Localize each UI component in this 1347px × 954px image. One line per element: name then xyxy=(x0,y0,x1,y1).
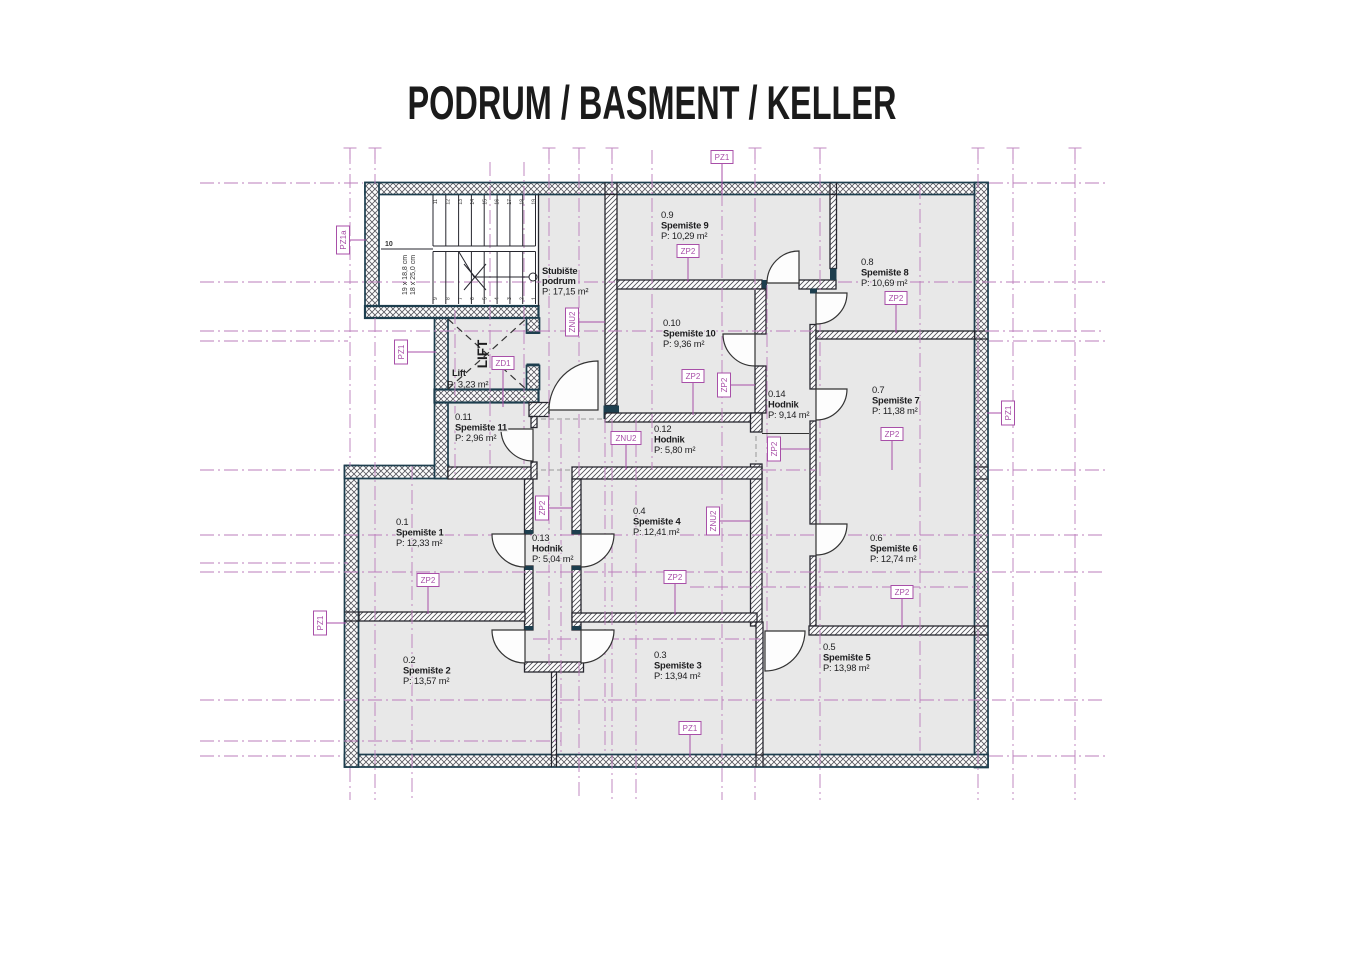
svg-text:ZP2: ZP2 xyxy=(885,430,900,439)
svg-text:0.14: 0.14 xyxy=(768,388,785,399)
svg-text:1: 1 xyxy=(532,297,538,300)
svg-text:7: 7 xyxy=(458,297,464,300)
svg-text:0.3: 0.3 xyxy=(654,649,666,660)
svg-text:ZP2: ZP2 xyxy=(668,573,683,582)
svg-text:LIFT: LIFT xyxy=(475,339,490,368)
svg-text:0.2: 0.2 xyxy=(403,654,415,665)
svg-text:0.10: 0.10 xyxy=(663,317,680,328)
svg-text:P: 17,15 m²: P: 17,15 m² xyxy=(542,286,588,297)
svg-text:18: 18 xyxy=(519,199,525,205)
svg-text:Hodnik: Hodnik xyxy=(654,434,686,445)
svg-text:Spemište 7: Spemište 7 xyxy=(872,395,920,406)
svg-text:ZP2: ZP2 xyxy=(889,294,904,303)
svg-text:Lift: Lift xyxy=(452,367,466,378)
svg-text:P: 12,74 m²: P: 12,74 m² xyxy=(870,553,916,564)
svg-text:0.11: 0.11 xyxy=(455,411,472,422)
svg-text:ZP2: ZP2 xyxy=(538,500,547,515)
svg-text:P: 5,80 m²: P: 5,80 m² xyxy=(654,444,695,455)
svg-text:PZ1: PZ1 xyxy=(397,344,406,359)
svg-text:8: 8 xyxy=(446,297,452,300)
svg-text:5: 5 xyxy=(482,297,488,300)
svg-text:P: 13,98 m²: P: 13,98 m² xyxy=(823,662,869,673)
svg-text:Spemište 5: Spemište 5 xyxy=(823,652,871,663)
svg-text:PZ1: PZ1 xyxy=(1004,405,1013,420)
svg-text:PODRUM / BASMENT / KELLER: PODRUM / BASMENT / KELLER xyxy=(408,76,897,129)
svg-text:Spemište 9: Spemište 9 xyxy=(661,220,709,231)
svg-text:0.6: 0.6 xyxy=(870,532,882,543)
svg-text:Spemište 2: Spemište 2 xyxy=(403,665,451,676)
svg-text:Spemište 8: Spemište 8 xyxy=(861,267,909,278)
svg-text:ZP2: ZP2 xyxy=(895,588,910,597)
svg-text:P: 9,36 m²: P: 9,36 m² xyxy=(663,338,704,349)
svg-text:14: 14 xyxy=(470,199,476,205)
svg-text:0.13: 0.13 xyxy=(532,532,549,543)
svg-text:P: 13,94 m²: P: 13,94 m² xyxy=(654,670,700,681)
svg-text:16: 16 xyxy=(495,199,501,205)
svg-text:12: 12 xyxy=(446,199,452,205)
svg-text:ZP2: ZP2 xyxy=(770,441,779,456)
svg-text:17: 17 xyxy=(507,199,513,205)
svg-text:P: 11,38 m²: P: 11,38 m² xyxy=(872,405,918,416)
svg-text:P: 12,33 m²: P: 12,33 m² xyxy=(396,537,442,548)
svg-text:0.7: 0.7 xyxy=(872,384,884,395)
svg-text:P: 10,69 m²: P: 10,69 m² xyxy=(861,277,907,288)
svg-text:P: 5,04 m²: P: 5,04 m² xyxy=(532,553,573,564)
svg-text:ZP2: ZP2 xyxy=(421,576,436,585)
svg-text:Spemište 11: Spemište 11 xyxy=(455,422,507,433)
svg-text:0.8: 0.8 xyxy=(861,256,873,267)
svg-text:Spemište 3: Spemište 3 xyxy=(654,660,702,671)
svg-text:Spemište 1: Spemište 1 xyxy=(396,527,444,538)
svg-text:9: 9 xyxy=(433,297,439,300)
svg-text:3: 3 xyxy=(507,297,513,300)
svg-text:19 x 18,8 cm: 19 x 18,8 cm xyxy=(402,255,409,295)
svg-text:ZNU2: ZNU2 xyxy=(709,510,718,531)
svg-text:PZ1: PZ1 xyxy=(715,153,730,162)
svg-text:PZ1: PZ1 xyxy=(316,615,325,630)
svg-text:Spemište 10: Spemište 10 xyxy=(663,328,716,339)
svg-text:PZ1a: PZ1a xyxy=(339,230,348,250)
svg-text:Spemište 6: Spemište 6 xyxy=(870,543,918,554)
svg-text:ZP2: ZP2 xyxy=(686,372,701,381)
svg-text:19: 19 xyxy=(532,199,538,205)
svg-text:18 x 25,0 cm: 18 x 25,0 cm xyxy=(410,255,417,295)
svg-text:P: 10,29 m²: P: 10,29 m² xyxy=(661,230,707,241)
svg-text:podrum: podrum xyxy=(542,275,576,286)
svg-text:ZNU2: ZNU2 xyxy=(616,434,637,443)
svg-text:0.12: 0.12 xyxy=(654,423,671,434)
svg-text:ZP2: ZP2 xyxy=(720,377,729,392)
svg-text:13: 13 xyxy=(458,199,464,205)
svg-text:P: 9,14 m²: P: 9,14 m² xyxy=(768,409,809,420)
svg-text:15: 15 xyxy=(482,199,488,205)
svg-text:ZD1: ZD1 xyxy=(495,359,511,368)
svg-text:P: 13,57 m²: P: 13,57 m² xyxy=(403,675,449,686)
svg-text:Spemište 4: Spemište 4 xyxy=(633,516,681,527)
svg-text:0.4: 0.4 xyxy=(633,505,645,516)
svg-text:PZ1: PZ1 xyxy=(683,724,698,733)
svg-text:Hodnik: Hodnik xyxy=(532,543,564,554)
svg-text:ZNU2: ZNU2 xyxy=(568,311,577,332)
svg-text:ZP2: ZP2 xyxy=(681,247,696,256)
svg-text:Hodnik: Hodnik xyxy=(768,399,800,410)
svg-text:0.1: 0.1 xyxy=(396,516,408,527)
svg-text:P: 2,96 m²: P: 2,96 m² xyxy=(455,432,496,443)
svg-text:2: 2 xyxy=(519,297,525,300)
svg-text:10: 10 xyxy=(385,241,393,248)
svg-text:0.5: 0.5 xyxy=(823,641,835,652)
svg-text:P: 12,41 m²: P: 12,41 m² xyxy=(633,526,679,537)
svg-text:0.9: 0.9 xyxy=(661,209,673,220)
svg-text:4: 4 xyxy=(495,297,501,300)
svg-text:11: 11 xyxy=(433,199,439,204)
svg-text:P: 3,23 m²: P: 3,23 m² xyxy=(447,379,488,390)
svg-text:6: 6 xyxy=(470,297,476,300)
